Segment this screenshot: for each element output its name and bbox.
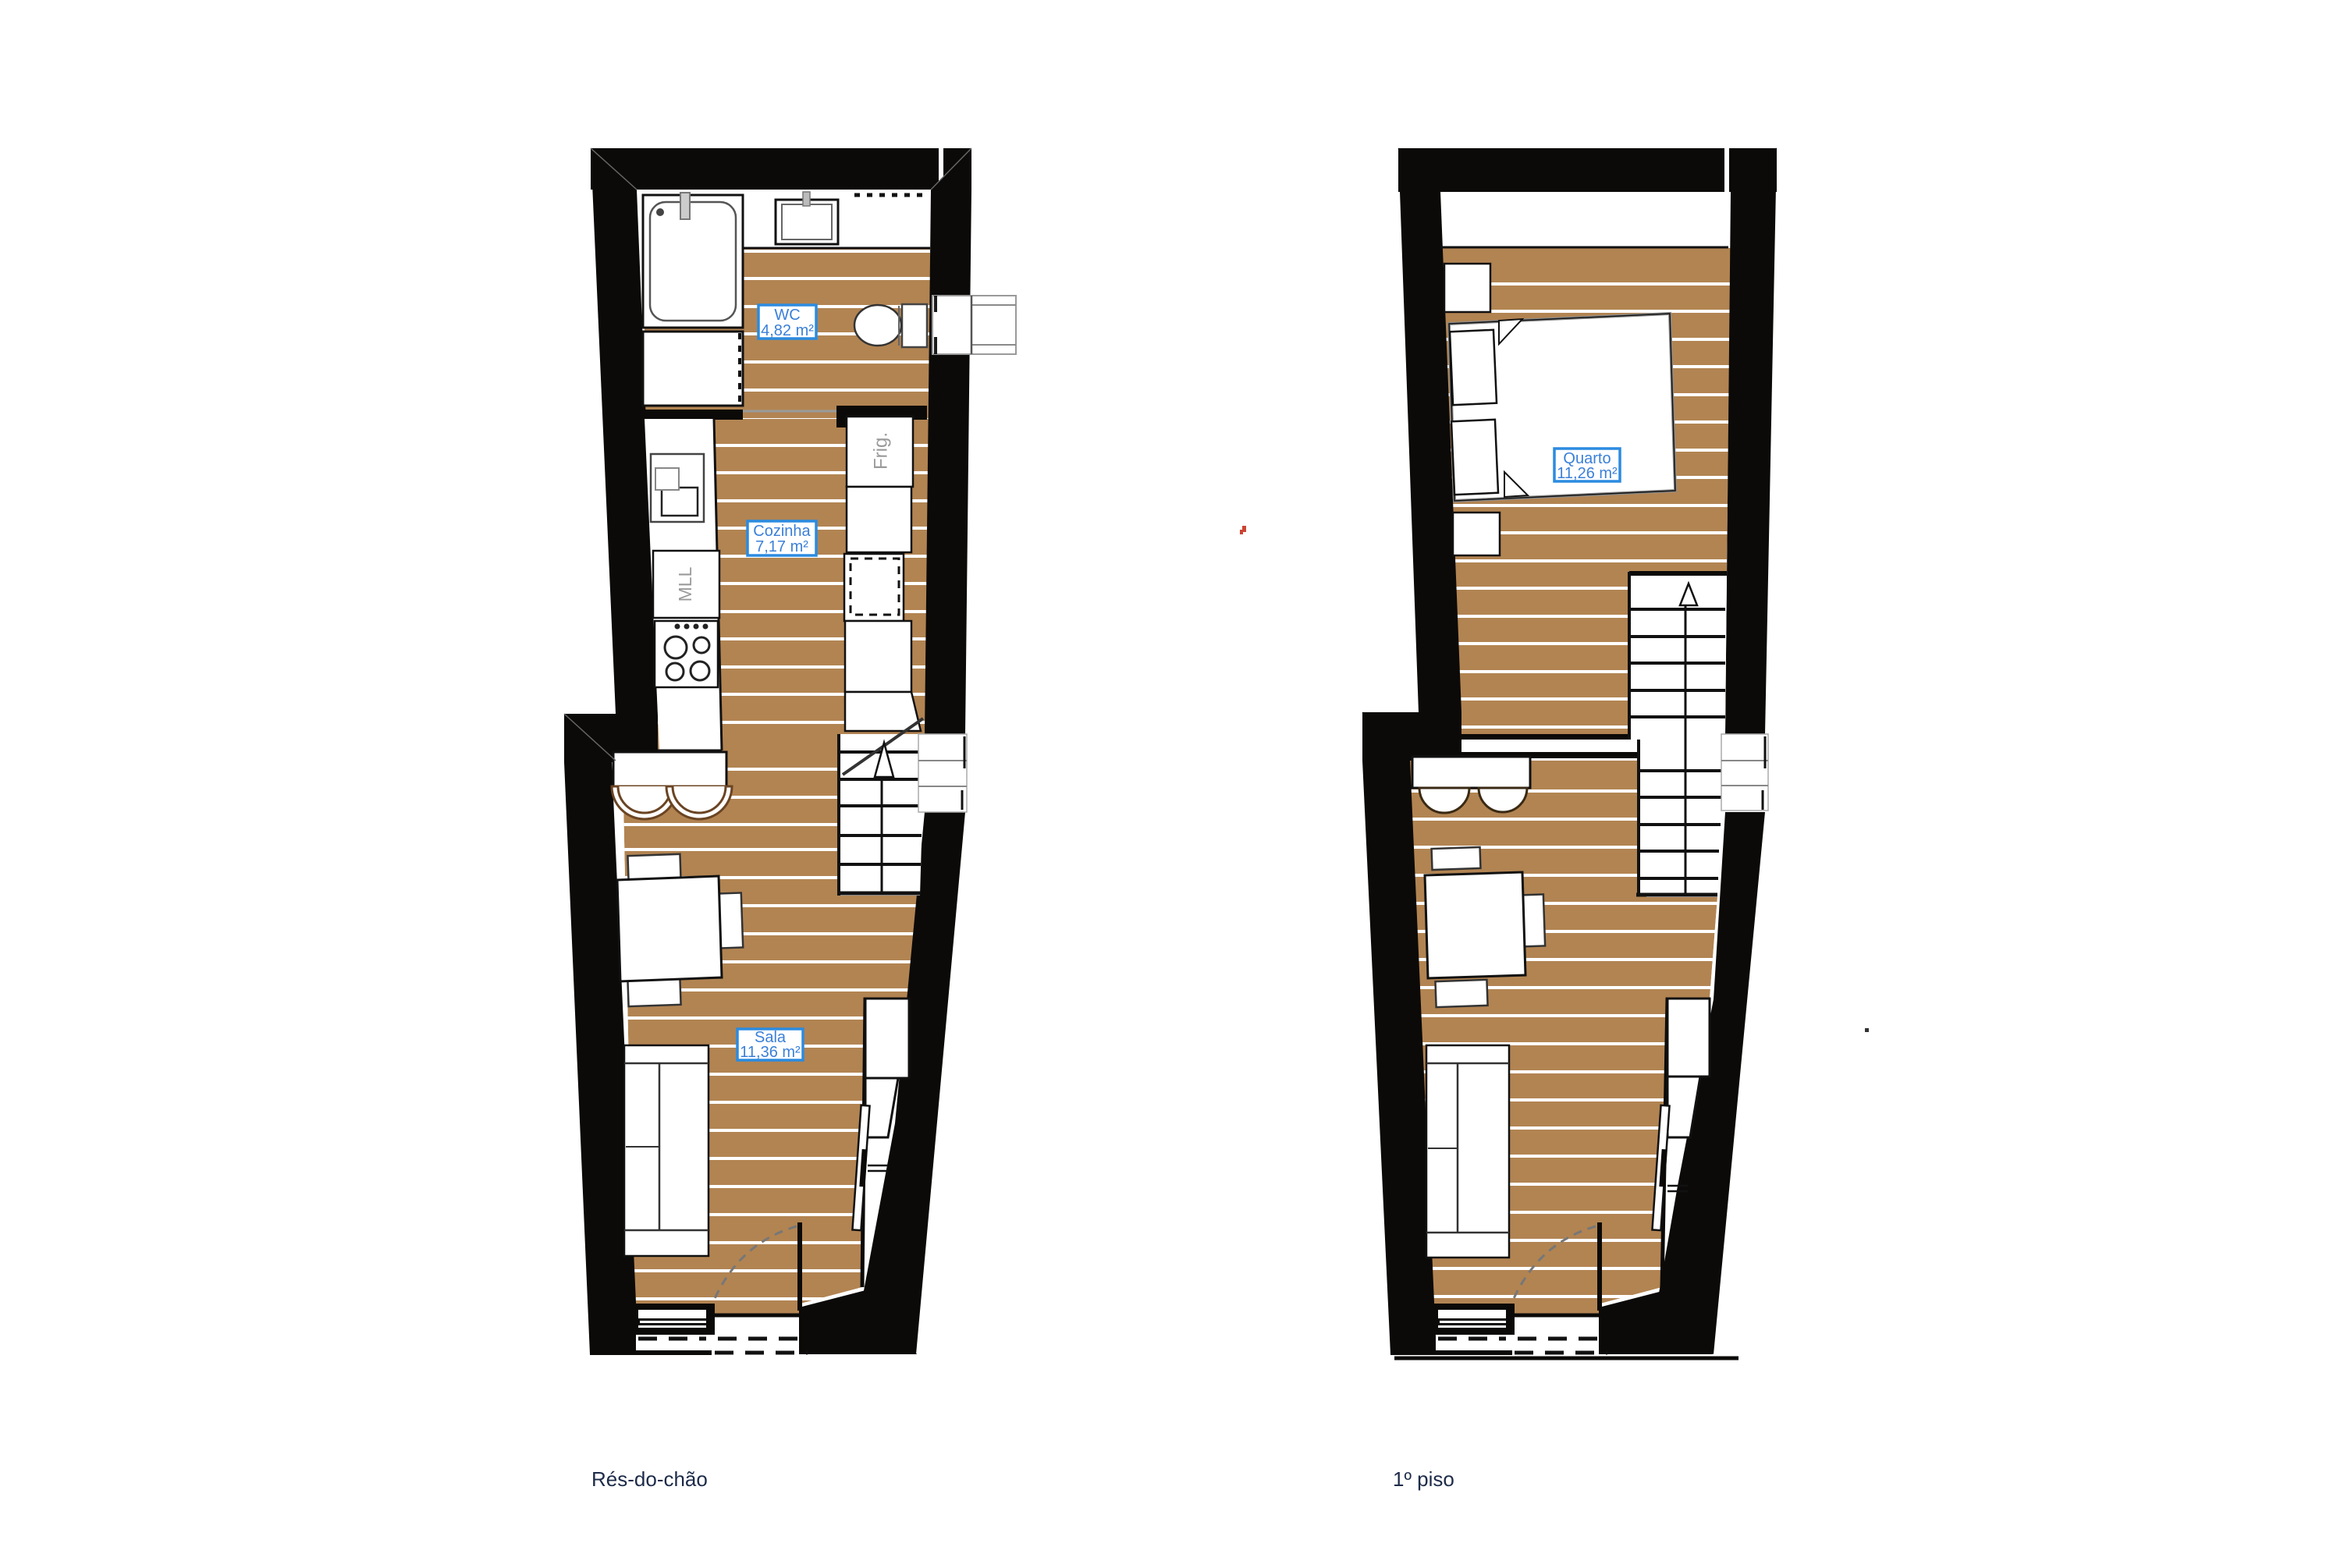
svg-text:MLL: MLL [675, 566, 695, 601]
svg-text:7,17 m²: 7,17 m² [755, 538, 808, 555]
svg-text:Cozinha: Cozinha [753, 523, 811, 540]
svg-text:11,36 m²: 11,36 m² [740, 1044, 801, 1061]
svg-text:1º piso: 1º piso [1393, 1467, 1454, 1491]
svg-text:11,26 m²: 11,26 m² [1557, 465, 1618, 482]
svg-text:WC: WC [774, 307, 800, 324]
svg-text:4,82 m²: 4,82 m² [761, 322, 814, 339]
svg-text:Frig.: Frig. [871, 432, 892, 470]
svg-text:Rés-do-chão: Rés-do-chão [591, 1467, 708, 1491]
